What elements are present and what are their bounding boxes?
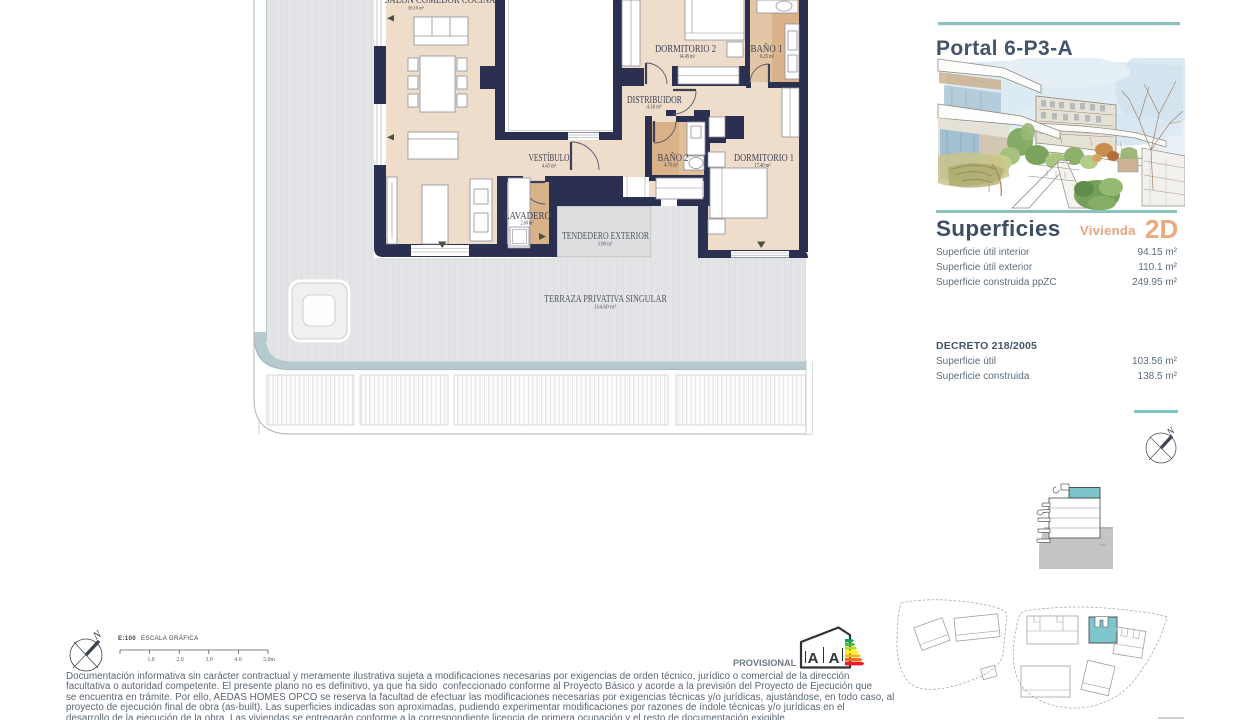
svg-text:PROVISIONAL: PROVISIONAL <box>733 658 797 668</box>
svg-text:N: N <box>1164 425 1178 439</box>
svg-text:3.90 m²: 3.90 m² <box>598 242 613 248</box>
svg-text:14.45 m²: 14.45 m² <box>679 54 695 60</box>
svg-text:A: A <box>808 650 819 667</box>
svg-text:2.0: 2.0 <box>176 657 183 663</box>
svg-text:E:100: E:100 <box>118 635 136 642</box>
svg-text:4.70 m²: 4.70 m² <box>664 163 678 169</box>
svg-text:6.25 m²: 6.25 m² <box>760 54 774 60</box>
svg-text:TERRAZA PRIVATIVA SINGULAR: TERRAZA PRIVATIVA SINGULAR <box>544 293 667 305</box>
svg-text:3.0: 3.0 <box>205 657 212 663</box>
svg-text:114.60 m²: 114.60 m² <box>594 305 616 311</box>
svg-text:TENDEDERO EXTERIOR: TENDEDERO EXTERIOR <box>562 230 649 242</box>
svg-text:SALÓN COMEDOR COCINA: SALÓN COMEDOR COCINA <box>385 0 496 6</box>
svg-text:5.0m: 5.0m <box>263 657 275 663</box>
svg-text:4.0: 4.0 <box>234 657 241 663</box>
svg-text:2.60 m²: 2.60 m² <box>521 221 534 227</box>
svg-text:A: A <box>829 650 840 667</box>
svg-text:4.10 m²: 4.10 m² <box>647 105 662 111</box>
svg-text:ESCALA GRÁFICA: ESCALA GRÁFICA <box>141 635 199 642</box>
svg-text:4.45 m²: 4.45 m² <box>542 164 556 170</box>
svg-text:1.0: 1.0 <box>147 657 154 663</box>
svg-text:VESTÍBULO: VESTÍBULO <box>529 152 570 164</box>
svg-text:36.10 m²: 36.10 m² <box>408 6 424 12</box>
svg-text:17.40 m²: 17.40 m² <box>755 163 771 169</box>
svg-text:N: N <box>90 628 104 643</box>
